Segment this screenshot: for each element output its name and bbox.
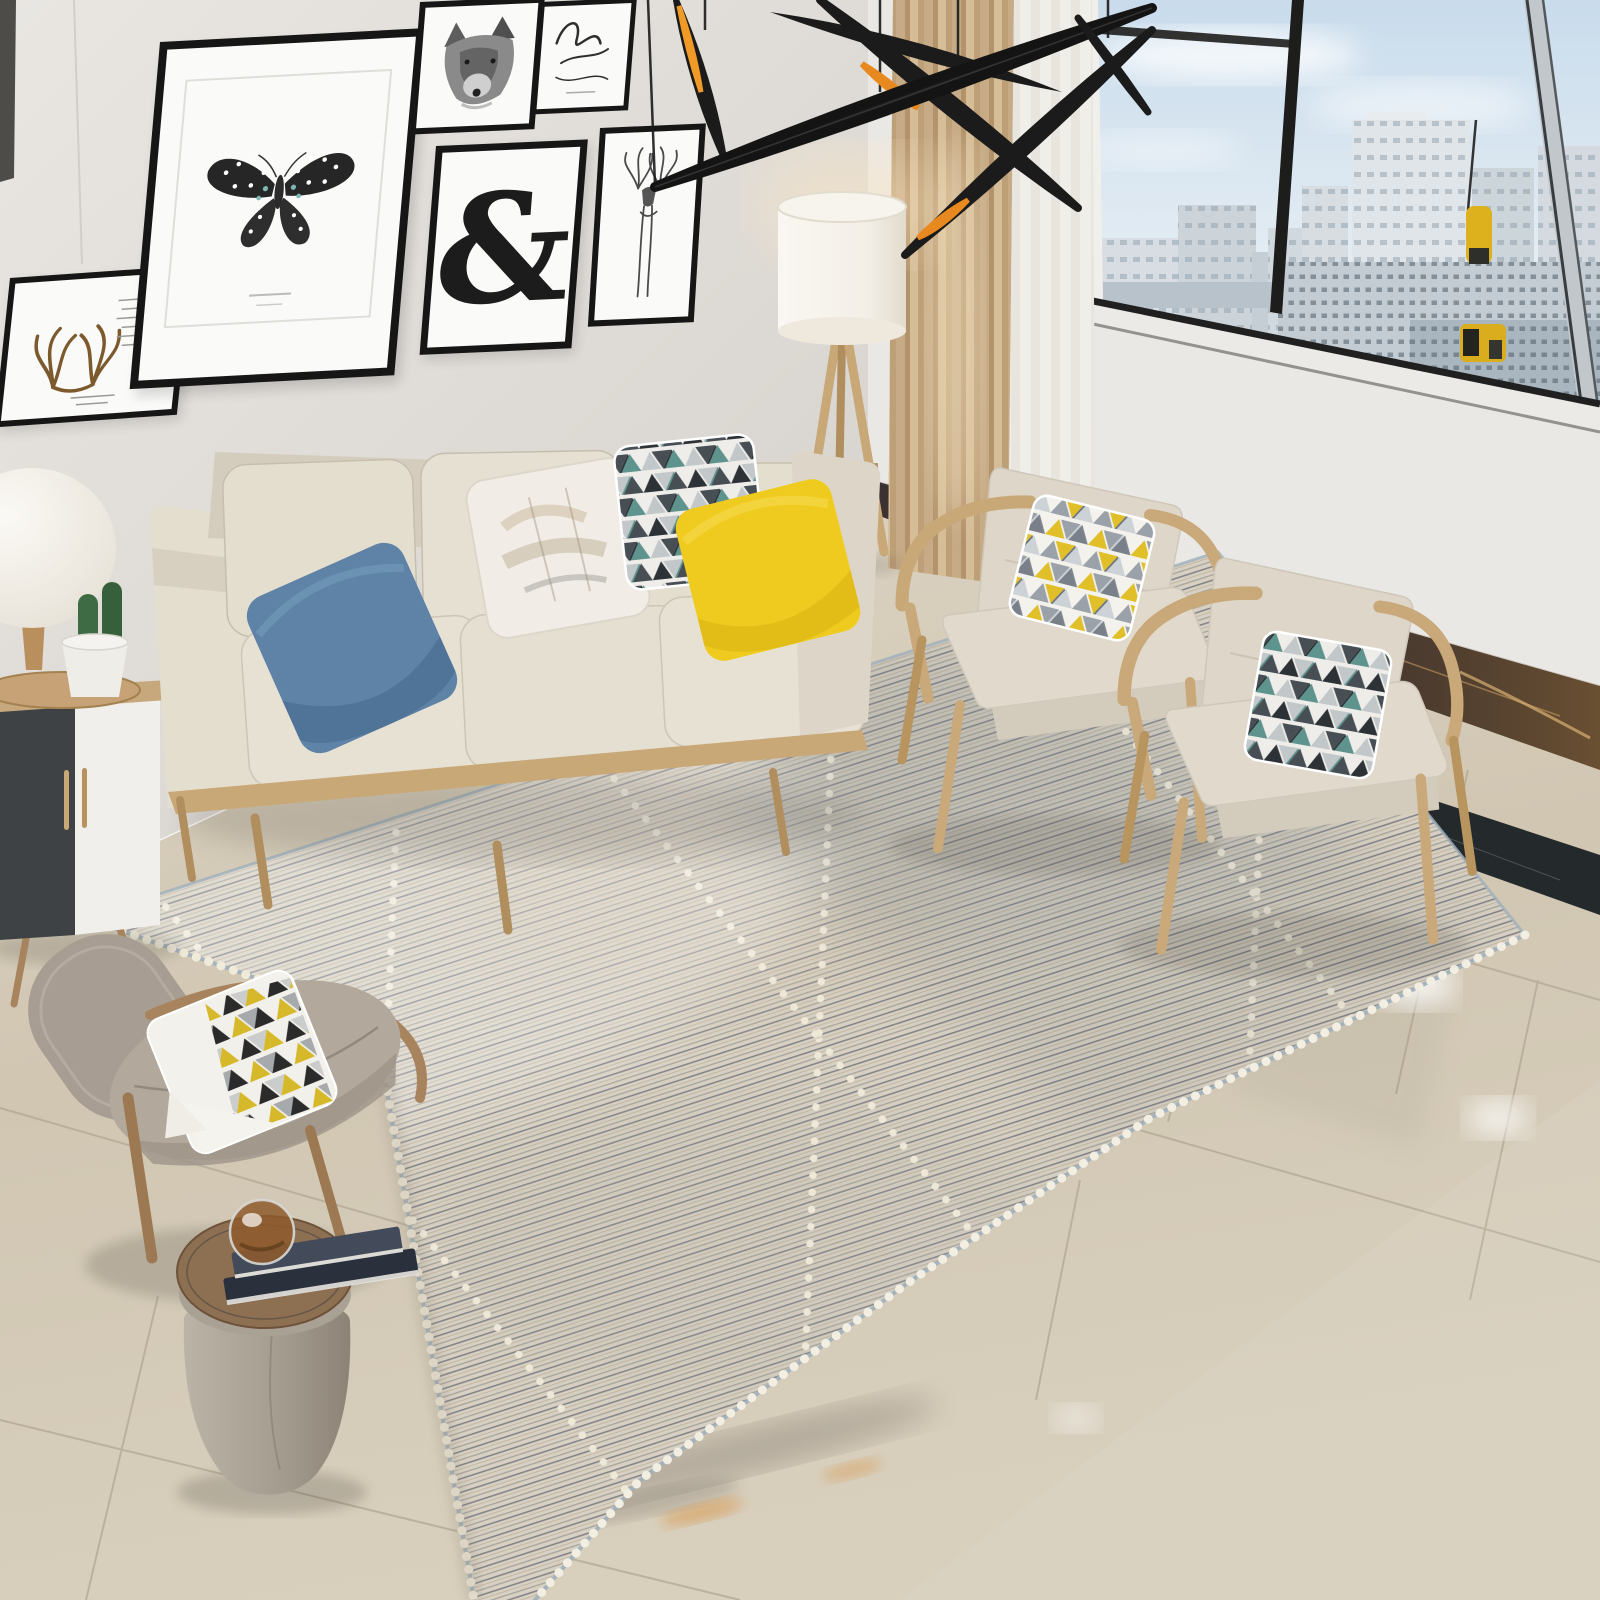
light-pool xyxy=(1466,1099,1530,1137)
cabinet-handle xyxy=(82,768,87,828)
cabinet-white-door xyxy=(75,693,160,935)
shade-top xyxy=(778,192,906,222)
ampersand-glyph: & xyxy=(429,157,578,340)
wolf-frame xyxy=(410,0,545,135)
scene-canvas: & xyxy=(0,0,1600,1600)
glass-ball-decor xyxy=(230,1200,294,1264)
armchair-2-pillow xyxy=(1243,630,1394,781)
ampersand-frame: & xyxy=(419,139,592,361)
lamp-drum-shade xyxy=(778,206,906,332)
living-room-photo: & xyxy=(0,0,1600,1600)
doorframe-sliver xyxy=(0,0,16,182)
light-pool xyxy=(1053,1405,1099,1431)
deer-frame xyxy=(588,123,706,326)
cabinet-handle xyxy=(64,770,69,830)
script-frame xyxy=(531,0,637,114)
cabinet-black-door xyxy=(0,700,75,940)
cloud xyxy=(1080,132,1240,168)
shade-bottom xyxy=(778,317,906,345)
butterfly-frame xyxy=(129,28,431,397)
